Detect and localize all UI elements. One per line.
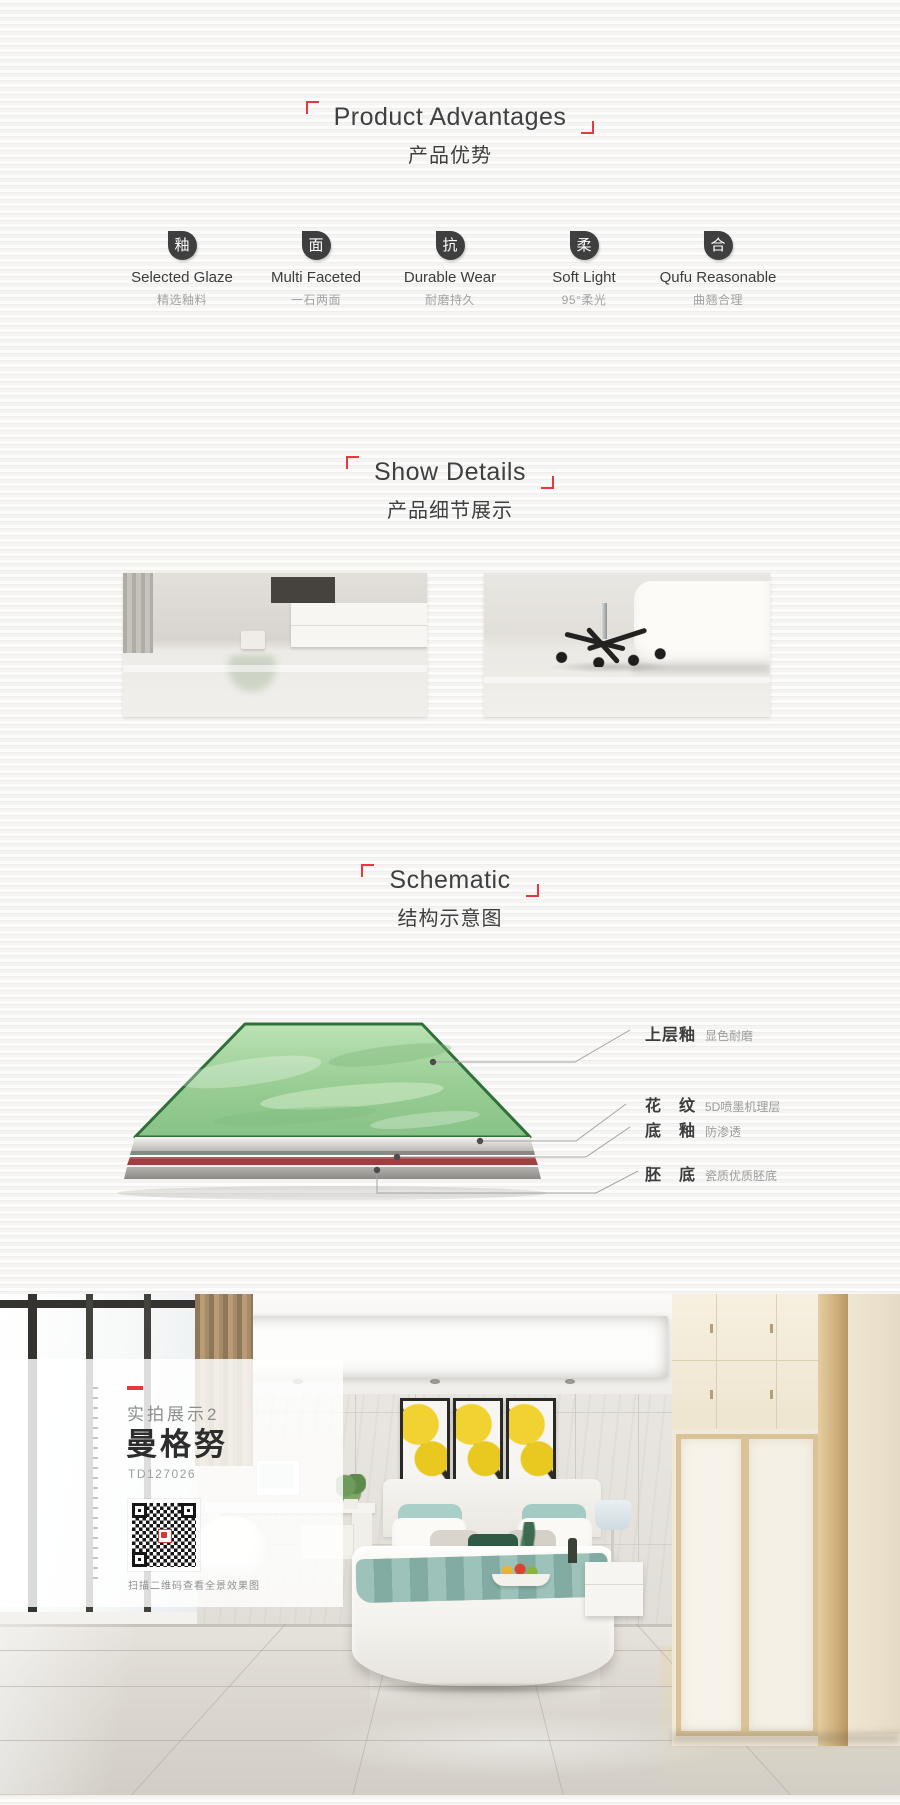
pattern-layer-edge [131, 1137, 534, 1151]
qr-caption: 扫描二维码查看全景效果图 [128, 1577, 260, 1592]
flatness-icon: 合 [704, 231, 733, 260]
product-name: 曼格努 [126, 1419, 228, 1464]
layer-name: 花 纹 [645, 1092, 695, 1116]
wardrobe-sliding-door [676, 1434, 746, 1736]
advantage-item: 面 Multi Faceted 一石两面 [249, 231, 383, 308]
advantage-sublabel: 一石两面 [249, 291, 383, 308]
base-body-layer [124, 1167, 541, 1179]
advantages-header: Product Advantages 产品优势 [0, 103, 900, 168]
bed-floor-shadow [358, 1682, 610, 1694]
corner-bracket-top-left-icon [361, 864, 374, 877]
layer-desc: 瓷质优质胚底 [705, 1169, 777, 1183]
qr-finder-square [181, 1503, 196, 1518]
layer-desc: 防渗透 [705, 1125, 741, 1139]
wall-art-frame [506, 1398, 556, 1482]
advantage-label: Durable Wear [383, 269, 517, 286]
advantage-label: Multi Faceted [249, 269, 383, 286]
red-dash-accent [127, 1386, 143, 1390]
details-title: Show Details [374, 458, 526, 487]
schematic-header: Schematic 结构示意图 [0, 866, 900, 931]
details-header: Show Details 产品细节展示 [0, 458, 900, 523]
corner-bracket-top-left-icon [306, 101, 319, 114]
advantage-item: 合 Qufu Reasonable 曲翘合理 [651, 231, 785, 308]
wardrobe-floor-shadow [672, 1732, 900, 1744]
advantage-item: 柔 Soft Light 95°柔光 [517, 231, 651, 308]
chair-pole [602, 603, 607, 639]
layer-label-top-glaze: 上层釉显色耐磨 [645, 1021, 753, 1045]
table-lamp [595, 1500, 631, 1530]
wardrobe-sliding-door [744, 1434, 818, 1736]
layer-name: 底 釉 [645, 1117, 695, 1141]
advantage-sublabel: 精选釉料 [115, 291, 249, 308]
qr-finder-square [132, 1503, 147, 1518]
advantages-row: 釉 Selected Glaze 精选釉料 面 Multi Faceted 一石… [115, 231, 785, 308]
advantage-label: Selected Glaze [115, 269, 249, 286]
wardrobe-side-panel [848, 1294, 900, 1734]
wall-art-frame [453, 1398, 503, 1482]
qr-finder-square [132, 1552, 147, 1567]
layer-desc: 5D喷墨机理层 [705, 1100, 780, 1114]
advantage-label: Qufu Reasonable [651, 269, 785, 286]
wood-pillar [818, 1294, 848, 1746]
floor-reflection [217, 655, 287, 697]
wear-resistance-icon: 抗 [436, 231, 465, 260]
advantages-subtitle: 产品优势 [0, 139, 900, 168]
flatness-icon-glyph: 合 [710, 238, 725, 253]
advantage-item: 抗 Durable Wear 耐磨持久 [383, 231, 517, 308]
layer-label-pattern: 花 纹5D喷墨机理层 [645, 1092, 780, 1116]
cabinet-handle [710, 1324, 713, 1333]
layer-label-under-glaze: 底 釉防渗透 [645, 1117, 741, 1141]
cabinet-handle [710, 1390, 713, 1399]
product-code: TD127026 [128, 1467, 196, 1481]
showcase-photo: 实拍展示2 曼格努 TD127026 扫描二维码查看全景效果图 [0, 1294, 900, 1795]
qr-code [128, 1499, 200, 1571]
corner-bracket-top-left-icon [346, 456, 359, 469]
details-subtitle: 产品细节展示 [0, 494, 900, 523]
corner-bracket-bottom-right-icon [541, 476, 554, 489]
cabinet-door-line [776, 1294, 777, 1429]
glaze-icon-glyph: 釉 [174, 238, 189, 253]
ceiling-spotlight [430, 1379, 440, 1384]
glaze-icon: 釉 [168, 231, 197, 260]
floor-gloss [484, 677, 770, 683]
plant [215, 577, 293, 637]
layer-name: 上层釉 [645, 1021, 695, 1045]
corner-bracket-bottom-right-icon [581, 121, 594, 134]
detail-photo-living-room [123, 573, 427, 717]
wear-resistance-icon-glyph: 抗 [442, 238, 457, 253]
layer-name: 胚 底 [645, 1161, 695, 1185]
nightstand-drawer-line [585, 1584, 643, 1585]
advantage-sublabel: 耐磨持久 [383, 291, 517, 308]
surface-icon-glyph: 面 [308, 238, 323, 253]
plant-pot [241, 631, 265, 649]
product-detail-page: Product Advantages 产品优势 釉 Selected Glaze… [0, 0, 900, 1805]
wall-art-frame [400, 1398, 450, 1482]
schematic-title: Schematic [389, 866, 510, 895]
fruit-bowl [492, 1574, 550, 1586]
advantage-item: 釉 Selected Glaze 精选釉料 [115, 231, 249, 308]
curtain [123, 573, 153, 653]
detail-photo-bedroom [484, 573, 770, 717]
cabinet-door-line [716, 1294, 717, 1429]
cabinet-handle [770, 1324, 773, 1333]
floor-gloss [123, 665, 427, 672]
product-info-panel: 实拍展示2 曼格努 TD127026 扫描二维码查看全景效果图 [0, 1359, 343, 1607]
nightstand [585, 1562, 643, 1616]
chair-shadow [548, 661, 672, 673]
cabinet-handle [770, 1390, 773, 1399]
qr-center-logo [158, 1529, 172, 1543]
tick-marks-decoration [93, 1387, 98, 1585]
ceiling-spotlight [565, 1379, 575, 1384]
layer-desc: 显色耐磨 [705, 1029, 753, 1043]
layer-label-base-body: 胚 底瓷质优质胚底 [645, 1161, 777, 1185]
advantage-sublabel: 95°柔光 [517, 291, 651, 308]
layer-gap [130, 1151, 535, 1155]
soft-light-icon-glyph: 柔 [576, 238, 591, 253]
schematic-subtitle: 结构示意图 [0, 902, 900, 931]
advantages-title: Product Advantages [334, 103, 567, 132]
wardrobe [672, 1294, 900, 1746]
details-title-row: Show Details [0, 458, 900, 487]
advantage-label: Soft Light [517, 269, 651, 286]
surface-icon: 面 [302, 231, 331, 260]
tile-structure-diagram [90, 1000, 650, 1205]
desk-plant-pot [344, 1499, 358, 1509]
corner-bracket-bottom-right-icon [526, 884, 539, 897]
cabinet-edge [291, 625, 427, 626]
schematic-title-row: Schematic [0, 866, 900, 895]
table-lamp-pole [611, 1530, 614, 1562]
advantage-sublabel: 曲翘合理 [651, 291, 785, 308]
soft-light-icon: 柔 [570, 231, 599, 260]
advantages-title-row: Product Advantages [0, 103, 900, 132]
decor-bottle [568, 1538, 577, 1563]
